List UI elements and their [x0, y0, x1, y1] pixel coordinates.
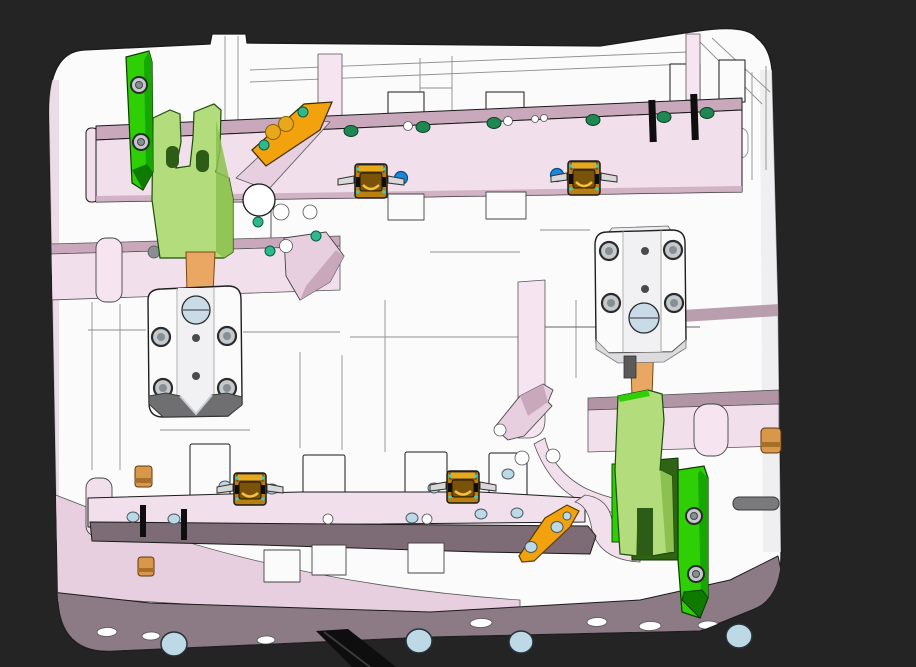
yoke-slot — [637, 508, 653, 556]
yoke-slot — [166, 146, 179, 168]
yoke-slot — [196, 150, 209, 172]
clamp-bar-bottom-right[interactable] — [678, 466, 708, 618]
lower-notch — [408, 543, 444, 573]
bracket-dot — [563, 512, 571, 520]
block-pin — [641, 285, 649, 293]
block-pin — [641, 247, 649, 255]
locating-ball — [243, 184, 275, 216]
cad-canvas[interactable] — [0, 0, 916, 667]
knob-band — [138, 568, 154, 572]
pink-strip-top-right — [686, 34, 700, 100]
block-screw — [218, 327, 236, 345]
block-screw — [665, 294, 683, 312]
bar-screw — [131, 77, 147, 93]
lower-notch — [264, 550, 300, 582]
bracket-dot — [525, 542, 537, 553]
block-shadow-mark — [624, 356, 636, 378]
block-pin — [192, 334, 200, 342]
wedge-dot — [298, 107, 308, 117]
rail-tick — [648, 100, 656, 142]
block-screw — [602, 294, 620, 312]
wedge-hole — [266, 125, 281, 140]
block-screw — [664, 241, 682, 259]
block-screw — [152, 328, 170, 346]
rail-tick — [181, 509, 187, 540]
bar-screw — [686, 508, 702, 524]
knob-band — [135, 478, 152, 483]
bracket-dot — [551, 522, 563, 533]
slide-block-left[interactable] — [148, 286, 242, 417]
lower-notch — [312, 545, 346, 575]
knob-band — [761, 442, 781, 447]
slide-block-right[interactable] — [595, 226, 686, 378]
block-screw — [600, 242, 618, 260]
wedge-hole — [279, 117, 294, 132]
rail-tick — [140, 505, 146, 537]
bar-screw — [688, 566, 704, 582]
bar-screw — [133, 134, 149, 150]
cad-viewport[interactable] — [0, 0, 916, 667]
wedge-dot — [259, 140, 269, 150]
block-pin — [192, 372, 200, 380]
